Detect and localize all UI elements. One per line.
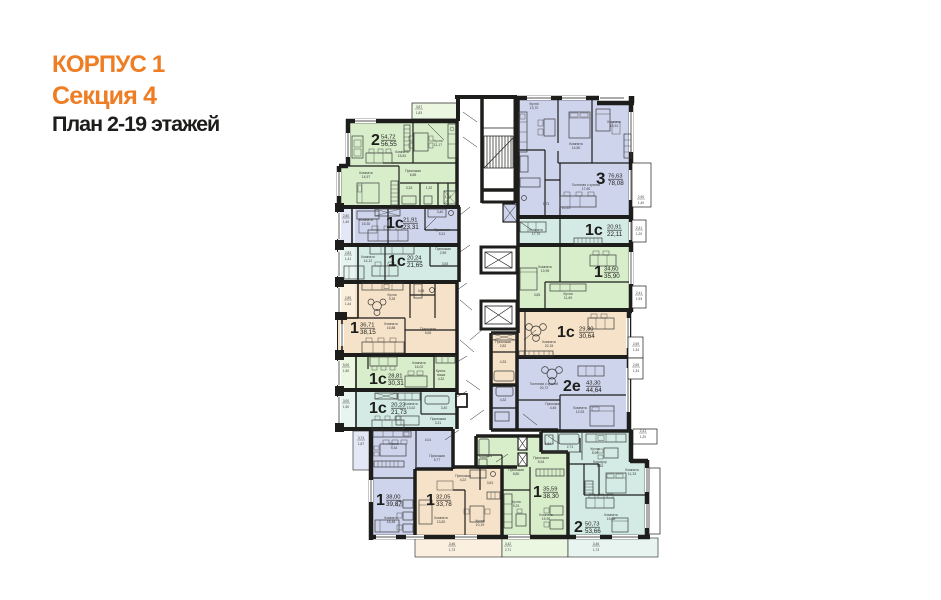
- svg-text:3,46: 3,46: [593, 542, 599, 546]
- svg-text:1,83: 1,83: [416, 111, 422, 115]
- svg-text:3,67: 3,67: [416, 105, 422, 109]
- svg-text:13,91: 13,91: [610, 124, 619, 128]
- svg-text:2,41: 2,41: [636, 226, 642, 230]
- svg-text:1,20: 1,20: [640, 435, 646, 439]
- svg-text:1,44: 1,44: [345, 302, 351, 306]
- svg-text:20,72: 20,72: [540, 386, 549, 390]
- svg-text:1,73: 1,73: [543, 202, 550, 206]
- svg-text:28,81: 28,81: [388, 374, 403, 380]
- svg-text:11,33: 11,33: [628, 472, 636, 476]
- svg-text:План 2-19 этажей: План 2-19 этажей: [52, 112, 219, 136]
- svg-text:15,95: 15,95: [542, 517, 551, 521]
- svg-text:1,73: 1,73: [449, 548, 455, 552]
- svg-text:35,90: 35,90: [604, 273, 620, 280]
- svg-text:44,64: 44,64: [586, 387, 602, 394]
- svg-text:33,78: 33,78: [436, 501, 452, 508]
- svg-text:1,41: 1,41: [345, 257, 351, 261]
- svg-text:2,71: 2,71: [567, 445, 574, 449]
- svg-text:2,59: 2,59: [440, 251, 447, 255]
- svg-text:1,51: 1,51: [545, 442, 552, 446]
- svg-text:1,73: 1,73: [593, 548, 599, 552]
- svg-text:53,66: 53,66: [585, 528, 601, 535]
- svg-text:21,91: 21,91: [403, 218, 418, 224]
- svg-text:1,34: 1,34: [633, 369, 639, 373]
- svg-text:3,61: 3,61: [486, 454, 493, 458]
- svg-text:13,82: 13,82: [437, 520, 446, 524]
- svg-text:36,71: 36,71: [360, 323, 375, 329]
- svg-text:17,60: 17,60: [582, 187, 591, 191]
- svg-text:3,81: 3,81: [487, 481, 494, 485]
- svg-text:3,65: 3,65: [418, 289, 425, 293]
- svg-text:15,81: 15,81: [398, 154, 407, 158]
- svg-text:30,64: 30,64: [579, 333, 595, 340]
- svg-text:1,87: 1,87: [358, 442, 364, 446]
- svg-text:2: 2: [574, 519, 583, 536]
- svg-text:54,72: 54,72: [381, 135, 396, 141]
- svg-text:38,00: 38,00: [386, 495, 401, 501]
- svg-text:1,40: 1,40: [343, 220, 349, 224]
- svg-text:4,33: 4,33: [500, 360, 507, 364]
- svg-text:4,32: 4,32: [438, 377, 445, 381]
- svg-text:4,45: 4,45: [550, 406, 557, 410]
- svg-text:14,12: 14,12: [364, 259, 373, 263]
- svg-text:23,31: 23,31: [403, 224, 419, 231]
- svg-text:КОРПУС 1: КОРПУС 1: [52, 51, 165, 78]
- svg-text:8,80: 8,80: [513, 472, 520, 476]
- svg-text:6,63: 6,63: [597, 464, 604, 468]
- svg-text:1: 1: [533, 484, 542, 501]
- svg-text:1,32: 1,32: [426, 186, 433, 190]
- svg-text:10,23: 10,23: [562, 206, 571, 210]
- svg-text:1с: 1с: [369, 400, 387, 417]
- svg-text:2,83: 2,83: [345, 251, 351, 255]
- svg-text:2,89: 2,89: [345, 296, 351, 300]
- svg-text:1с: 1с: [388, 253, 406, 270]
- svg-text:14,50: 14,50: [572, 146, 581, 150]
- svg-text:14,57: 14,57: [362, 175, 371, 179]
- svg-text:50,73: 50,73: [585, 522, 600, 528]
- svg-text:20,24: 20,24: [407, 256, 422, 262]
- svg-text:20,23: 20,23: [391, 403, 406, 409]
- svg-text:Секция 4: Секция 4: [52, 82, 157, 110]
- svg-text:8,95: 8,95: [592, 451, 599, 455]
- svg-text:3,40: 3,40: [441, 406, 448, 410]
- svg-text:1: 1: [426, 492, 435, 509]
- svg-text:5,94: 5,94: [538, 460, 545, 464]
- svg-text:43,30: 43,30: [586, 381, 601, 387]
- svg-text:1: 1: [350, 320, 359, 337]
- svg-text:5,00: 5,00: [343, 363, 349, 367]
- svg-text:11,17: 11,17: [434, 143, 442, 147]
- svg-text:1,34: 1,34: [633, 348, 639, 352]
- svg-text:4,01: 4,01: [425, 438, 432, 442]
- svg-text:38,15: 38,15: [360, 329, 376, 336]
- svg-text:2е: 2е: [563, 378, 581, 395]
- svg-text:3,42: 3,42: [505, 542, 511, 546]
- svg-text:4,32: 4,32: [500, 398, 507, 402]
- svg-text:11,69: 11,69: [564, 296, 572, 300]
- svg-text:22,11: 22,11: [607, 231, 623, 238]
- svg-text:1с: 1с: [585, 222, 603, 239]
- svg-text:4,22: 4,22: [460, 478, 467, 482]
- svg-text:56,55: 56,55: [381, 141, 397, 148]
- svg-text:12,53: 12,53: [576, 410, 585, 414]
- svg-text:21,65: 21,65: [407, 262, 423, 269]
- svg-text:78,08: 78,08: [608, 180, 624, 187]
- svg-text:1,93: 1,93: [636, 297, 642, 301]
- svg-text:1,62: 1,62: [445, 195, 452, 199]
- svg-text:32,05: 32,05: [436, 495, 451, 501]
- svg-text:13,70: 13,70: [530, 106, 539, 110]
- svg-text:2,69: 2,69: [633, 342, 639, 346]
- svg-text:17,70: 17,70: [532, 232, 541, 236]
- svg-text:38,30: 38,30: [543, 493, 559, 500]
- svg-text:3,40: 3,40: [437, 210, 444, 214]
- svg-text:16,02: 16,02: [415, 365, 424, 369]
- svg-text:3,33: 3,33: [406, 186, 413, 190]
- svg-text:29,30: 29,30: [579, 327, 594, 333]
- svg-text:2,90: 2,90: [638, 195, 644, 199]
- svg-text:1,20: 1,20: [636, 232, 642, 236]
- svg-text:2: 2: [371, 132, 380, 149]
- svg-text:3,46: 3,46: [449, 542, 455, 546]
- svg-text:2,41: 2,41: [640, 429, 646, 433]
- svg-text:3,21: 3,21: [435, 421, 442, 425]
- svg-text:39,87: 39,87: [386, 501, 402, 508]
- svg-text:15,30: 15,30: [362, 222, 371, 226]
- svg-text:3,83: 3,83: [534, 293, 541, 297]
- svg-text:18,48: 18,48: [387, 520, 396, 524]
- svg-text:76,63: 76,63: [608, 174, 623, 180]
- svg-text:9,34: 9,34: [391, 446, 398, 450]
- svg-text:22,15: 22,15: [545, 344, 554, 348]
- svg-text:1с: 1с: [557, 324, 575, 341]
- svg-text:1: 1: [594, 264, 603, 281]
- svg-text:9,28: 9,28: [389, 297, 396, 301]
- svg-text:13,95: 13,95: [541, 269, 550, 273]
- svg-text:1с: 1с: [369, 371, 387, 388]
- svg-text:34,60: 34,60: [604, 267, 619, 273]
- svg-text:5,21: 5,21: [439, 232, 446, 236]
- svg-text:1: 1: [376, 492, 385, 509]
- svg-text:1с: 1с: [386, 215, 404, 232]
- svg-text:16,88: 16,88: [387, 326, 396, 330]
- svg-text:2,41: 2,41: [636, 291, 642, 295]
- svg-text:30,31: 30,31: [388, 380, 404, 387]
- svg-text:21,73: 21,73: [391, 409, 407, 416]
- svg-text:3,53: 3,53: [442, 262, 449, 266]
- svg-text:1,50: 1,50: [343, 369, 349, 373]
- svg-text:1,40: 1,40: [638, 201, 644, 205]
- svg-text:15,68: 15,68: [607, 517, 616, 521]
- svg-text:35,59: 35,59: [543, 487, 558, 493]
- svg-text:2,80: 2,80: [343, 214, 349, 218]
- svg-text:6,85: 6,85: [410, 173, 417, 177]
- svg-text:2,69: 2,69: [633, 363, 639, 367]
- svg-text:2,71: 2,71: [505, 548, 511, 552]
- svg-text:10,19: 10,19: [476, 523, 485, 527]
- svg-text:9,23: 9,23: [513, 504, 520, 508]
- svg-text:13,62: 13,62: [407, 406, 416, 410]
- svg-text:5,77: 5,77: [434, 458, 441, 462]
- svg-text:20,91: 20,91: [607, 225, 622, 231]
- svg-text:2,82: 2,82: [500, 344, 507, 348]
- svg-text:3,74: 3,74: [358, 436, 364, 440]
- svg-text:5,65: 5,65: [425, 331, 432, 335]
- svg-text:1,50: 1,50: [343, 405, 349, 409]
- svg-text:3,00: 3,00: [343, 399, 349, 403]
